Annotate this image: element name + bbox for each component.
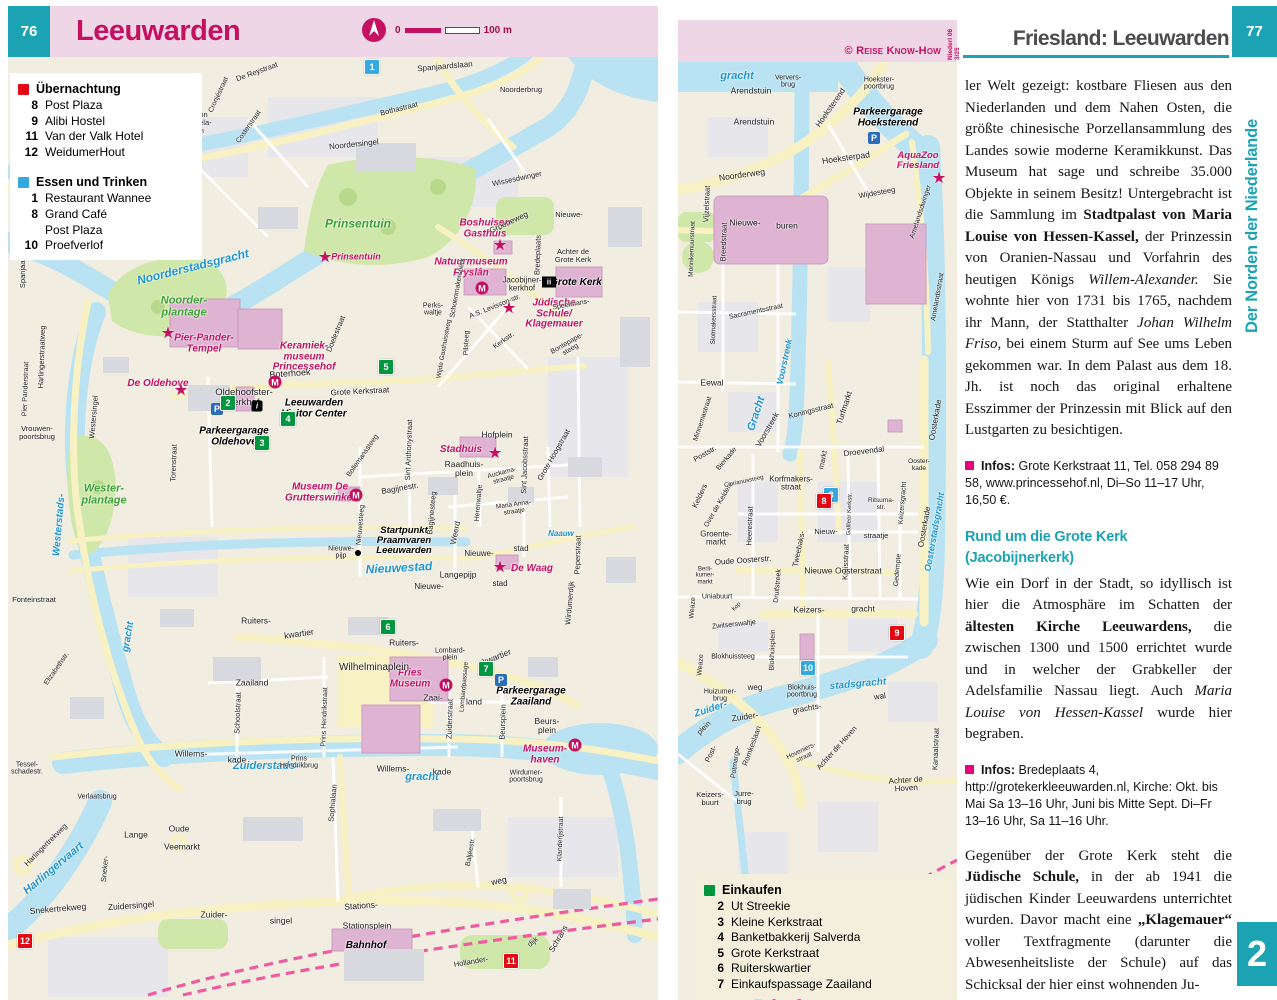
legend-item: 10Proefverlof — [18, 238, 194, 254]
chapter-number-tab: 2 — [1237, 922, 1277, 986]
accommodation-swatch — [18, 84, 29, 95]
legend-item-number: 3 — [704, 915, 724, 931]
map-marker-red-9: 9 — [889, 625, 905, 641]
article-column: ler Welt gezeigt: kostbare Fliesen aus d… — [965, 76, 1232, 996]
legend-item: 8Post Plaza — [18, 98, 194, 114]
map-marker-blue-1: 1 — [364, 59, 380, 75]
legend-item-number: 7 — [704, 977, 724, 993]
legend-item-label: Van der Valk Hotel — [45, 129, 143, 145]
left-page-header: 76 Leeuwarden 0 100 m — [8, 6, 658, 57]
legend-item: 2Ut Streekie — [704, 899, 954, 915]
page-number-left: 76 — [8, 6, 50, 57]
legend-item-label: Ruiterskwartier — [731, 961, 811, 977]
legend-item: 5Grote Kerkstraat — [704, 946, 954, 962]
legend-item-number: 5 — [704, 946, 724, 962]
legend-item-number: 4 — [704, 930, 724, 946]
map-marker-red-11: 11 — [503, 953, 519, 969]
legend-item: 3Kleine Kerkstraat — [704, 915, 954, 931]
scale-segment-open — [445, 27, 480, 34]
compass-icon — [360, 16, 388, 44]
text-run: ler Welt gezeigt: kostbare Fliesen aus d… — [965, 78, 1232, 223]
map-marker-green-6: 6 — [380, 619, 396, 635]
text-run: Infos: — [981, 763, 1015, 777]
shopping-swatch — [704, 885, 715, 896]
sidebar-chapter-title: Der Norden der Niederlande — [1243, 119, 1262, 333]
legend-item: 9Alibi Hostel — [18, 114, 194, 130]
map-marker-red-12: 12 — [17, 933, 33, 949]
legend-item-number: 6 — [704, 961, 724, 977]
legend-item-label: Proefverlof — [45, 238, 103, 254]
legend-item-number: 9 — [18, 114, 38, 130]
map-marker-green-3: 3 — [254, 435, 270, 451]
legend-title: Übernachtung — [36, 82, 121, 96]
legend-item: 8Grand Café Post Plaza — [18, 207, 194, 238]
article-paragraph: Wie ein Dorf in der Stadt, so idyllisch … — [965, 574, 1232, 746]
map-marker-green-5: 5 — [378, 359, 394, 375]
legend-item-label: Restaurant Wannee — [45, 191, 151, 207]
section-heading: Rund um die Grote Kerk (Jacobijnerkerk) — [965, 527, 1232, 570]
city-map-east: grachtGrachtVoorstreekstadsgrachtOosters… — [678, 62, 957, 1000]
copyright: © Reise Know-How — [845, 45, 941, 57]
text-run: Wie ein Dorf in der Stadt, so idyllisch … — [965, 576, 1232, 614]
legend-item-number: 8 — [18, 98, 38, 114]
map-marker-blue-10: 10 — [800, 660, 816, 676]
legend-item-label: Grote Kerkstraat — [731, 946, 819, 962]
legend-item-number: 8 — [18, 207, 38, 238]
page-number-right: 77 — [1232, 6, 1277, 57]
legend-item-label: Kleine Kerkstraat — [731, 915, 822, 931]
map-marker-green-4: 4 — [280, 411, 296, 427]
map-marker-red-8: 8 — [816, 493, 832, 509]
legend-item-number: 12 — [18, 145, 38, 161]
map-marker-green-7: 7 — [478, 661, 494, 677]
scale-end: 100 m — [484, 25, 512, 36]
scale-start: 0 — [395, 25, 401, 36]
map-legend-east: Einkaufen2Ut Streekie3Kleine Kerkstraat4… — [696, 874, 957, 999]
map-east-markers: 88910 — [678, 62, 957, 1000]
legend-item-label: Post Plaza — [45, 98, 102, 114]
legend-shopping: Einkaufen2Ut Streekie3Kleine Kerkstraat4… — [704, 883, 954, 993]
info-block: Infos: Bredeplaats 4, http://grotekerkle… — [965, 762, 1232, 830]
text-run: voller Textfragmente (darunter die Abwes… — [965, 934, 1232, 993]
legend-accommodation: Übernachtung8Post Plaza9Alibi Hostel11Va… — [18, 82, 194, 160]
legend-title: Einkaufen — [722, 883, 782, 897]
map-marker-green-2: 2 — [220, 395, 236, 411]
legend-item: 1Restaurant Wannee — [18, 191, 194, 207]
food-swatch — [18, 177, 29, 188]
text-run: ältesten Kirche Leeuwardens, — [965, 619, 1192, 635]
text-run: Gegenüber der Grote Kerk steht die — [965, 848, 1232, 864]
text-run: Infos: — [981, 459, 1015, 473]
legend-item-label: Banketbakkerij Salverda — [731, 930, 860, 946]
edition-code: Niederl 06 3/25 — [947, 29, 961, 60]
legend-item-label: WeidumerHout — [45, 145, 125, 161]
text-run: Willem-Alexander. — [1088, 272, 1198, 288]
text-run: bei einem Sturm auf See ums Leben gekomm… — [965, 336, 1232, 438]
text-run: „Klagemauer“ — [1138, 912, 1232, 928]
legend-item: 4Banketbakkerij Salverda — [704, 930, 954, 946]
scale-bar: 0 100 m — [395, 25, 512, 36]
info-block: Infos: Grote Kerkstraat 11, Tel. 058 294… — [965, 458, 1232, 509]
legend-item-number: 2 — [704, 899, 724, 915]
legend-title: Essen und Trinken — [36, 175, 147, 189]
legend-item: 11Van der Valk Hotel — [18, 129, 194, 145]
legend-item-label: Ut Streekie — [731, 899, 790, 915]
header-rule — [963, 55, 1229, 58]
legend-food: Essen und Trinken1Restaurant Wannee8Gran… — [18, 175, 194, 253]
text-run: Jüdische Schule, — [965, 869, 1079, 885]
left-banner: Leeuwarden 0 100 m — [50, 6, 658, 57]
guidebook-spread: 76 Leeuwarden 0 100 m © Reise Know-How N… — [0, 0, 1277, 1000]
map-scale-group: 0 100 m — [360, 16, 512, 44]
legend-item: 7Einkaufspassage Zaailand — [704, 977, 954, 993]
map-title: Leeuwarden — [76, 15, 240, 48]
right-banner: © Reise Know-How — [678, 20, 957, 62]
article-paragraph: ler Welt gezeigt: kostbare Fliesen aus d… — [965, 76, 1232, 442]
right-page-title: Friesland: Leeuwarden — [963, 27, 1229, 51]
article-paragraph: Gegenüber der Grote Kerk steht die Jüdis… — [965, 846, 1232, 997]
legend-item-label: Einkaufspassage Zaailand — [731, 977, 872, 993]
legend-item: 6Ruiterskwartier — [704, 961, 954, 977]
legend-item-label: Alibi Hostel — [45, 114, 105, 130]
map-legend-west: Übernachtung8Post Plaza9Alibi Hostel11Va… — [10, 73, 202, 260]
city-map-west: NoorderstadsgrachtNieuwestadZuiderstads-… — [8, 57, 658, 1000]
legend-item-number: 1 — [18, 191, 38, 207]
legend-item-number: 10 — [18, 238, 38, 254]
legend-item: 12WeidumerHout — [18, 145, 194, 161]
legend-item-number: 11 — [18, 129, 38, 145]
legend-item-label: Grand Café Post Plaza — [45, 207, 107, 238]
scale-segment-solid — [405, 28, 441, 33]
